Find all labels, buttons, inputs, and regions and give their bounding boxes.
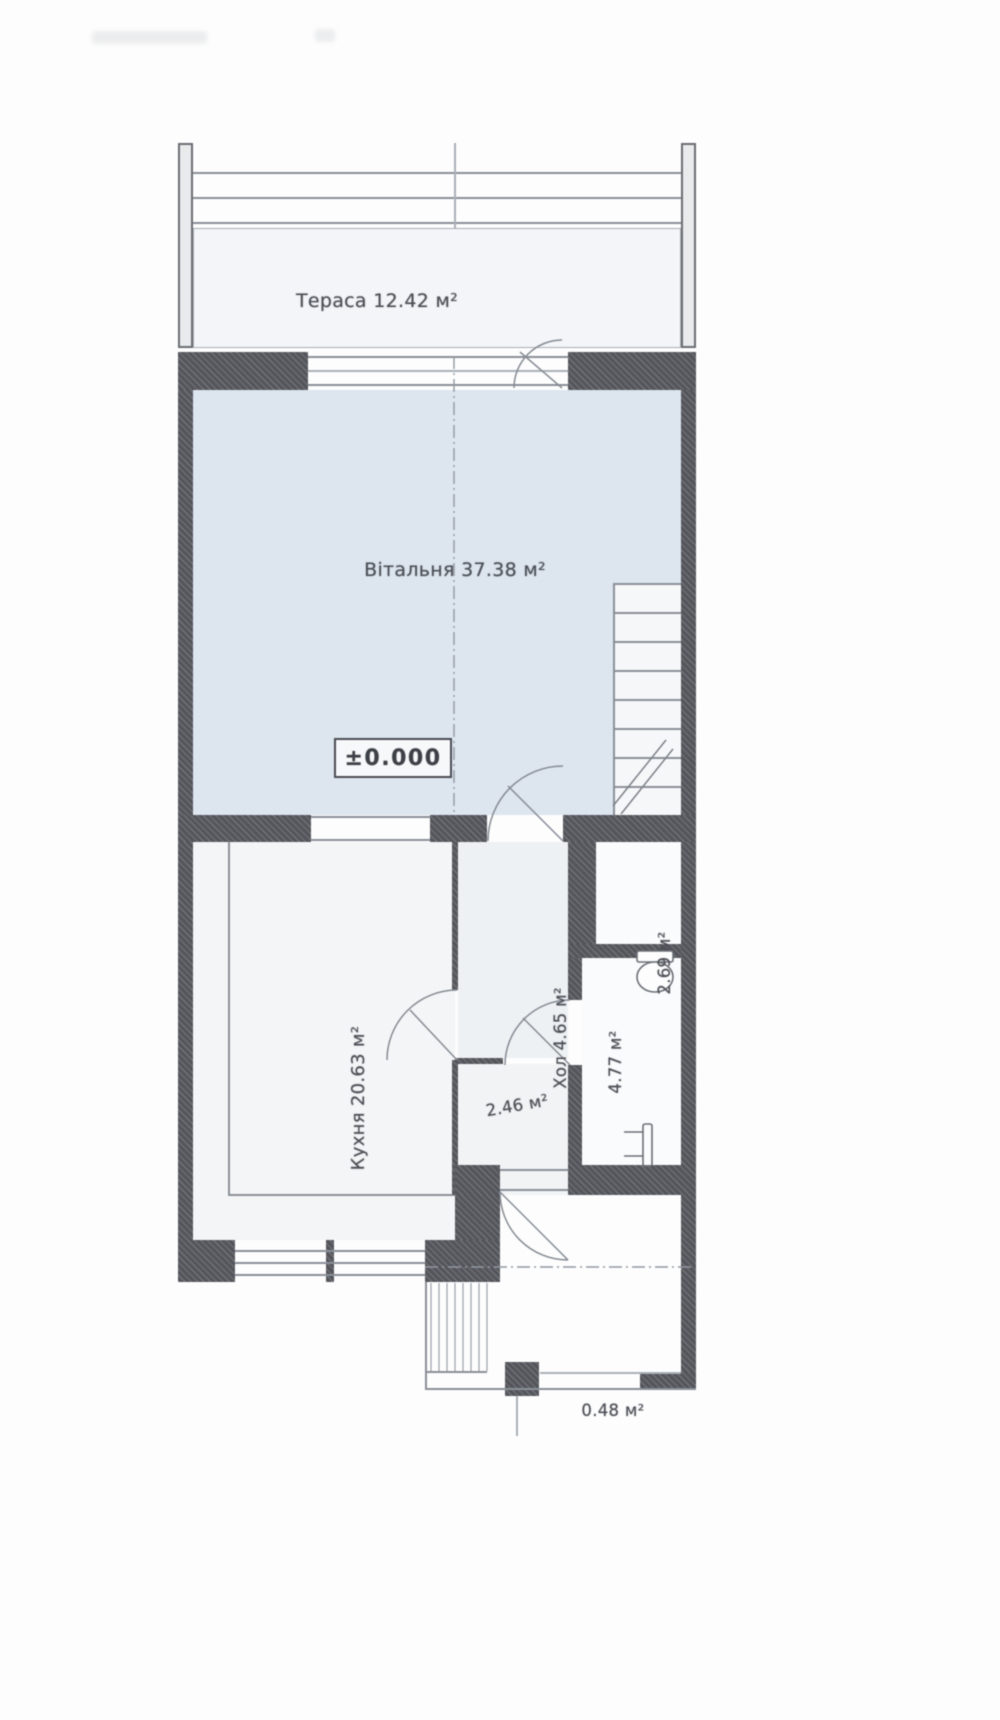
balcony-glazing-line (308, 370, 568, 372)
wall-top-left (178, 352, 308, 390)
wall-right (681, 390, 696, 1238)
living-label: Вітальня 37.38 м² (330, 556, 580, 584)
wall-porch-bottom (640, 1372, 696, 1388)
stair-tread (613, 583, 681, 585)
terrace-post-left (178, 143, 193, 348)
window-line (235, 1262, 425, 1264)
wall-top-right (568, 352, 696, 390)
porch-column (505, 1362, 539, 1396)
stair-tread (613, 757, 681, 759)
balcony-glazing-line (308, 384, 568, 386)
terrace-post-right (681, 143, 696, 348)
railing-line (193, 197, 681, 199)
wall-wc-left (568, 842, 596, 944)
partition-kitchen-hall-upper (452, 842, 458, 990)
porch-post-line (516, 1396, 518, 1436)
steps-edge-line (425, 1371, 487, 1373)
wall-corner-block (455, 1195, 500, 1240)
wc-label: 2.69 м² (654, 911, 674, 1015)
opening-line (311, 816, 430, 818)
door-opening-line (500, 1169, 568, 1171)
window-line (235, 1274, 425, 1276)
room-kitchen (193, 842, 455, 1240)
porch-label: 0.48 м² (557, 1398, 669, 1422)
stair-tread (613, 728, 681, 730)
elevation-mark: ±0.000 (334, 738, 452, 778)
wall-mid-right (563, 815, 696, 842)
kitchen-inner-line (228, 1194, 455, 1196)
window-line (235, 1250, 425, 1252)
bathroom-label: 4.77 м² (605, 1010, 625, 1114)
wall-mid-center (430, 815, 487, 842)
entrance-door-arc (500, 1192, 568, 1260)
wall-bottom-left (178, 1240, 235, 1282)
floor-plan-image: Тераса 12.42 м² Вітальня 37.38 м² ±0.000… (0, 0, 1000, 1720)
kitchen-label: Кухня 20.63 м² (346, 998, 370, 1198)
stair-tread (613, 786, 681, 788)
stair-tread (613, 641, 681, 643)
balcony-glazing-line (308, 356, 568, 358)
terrace-label: Тераса 12.42 м² (262, 287, 492, 315)
stair-tread (613, 612, 681, 614)
wall-entry-right (568, 1165, 696, 1195)
porch-edge-bottom (425, 1388, 696, 1390)
porch-inner-line (540, 1372, 681, 1374)
door-opening-line (500, 1189, 568, 1191)
stair-tread (613, 699, 681, 701)
partition-hall-vestibule (455, 1058, 503, 1064)
porch-step-lines (431, 1283, 487, 1371)
wall-bottom-center (425, 1240, 500, 1282)
wall-mid-left (178, 815, 311, 842)
kitchen-counter-line (228, 842, 230, 1196)
stair-tread (613, 670, 681, 672)
opening-line (311, 839, 430, 841)
entrance-door-leaf (500, 1192, 568, 1260)
wall-porch-right (681, 1238, 696, 1390)
axis-line-top (454, 143, 456, 233)
railing-line (193, 172, 681, 174)
railing-line (193, 222, 681, 224)
floor-plan: Тераса 12.42 м² Вітальня 37.38 м² ±0.000… (0, 0, 1000, 1720)
wall-entry-left (455, 1165, 500, 1195)
